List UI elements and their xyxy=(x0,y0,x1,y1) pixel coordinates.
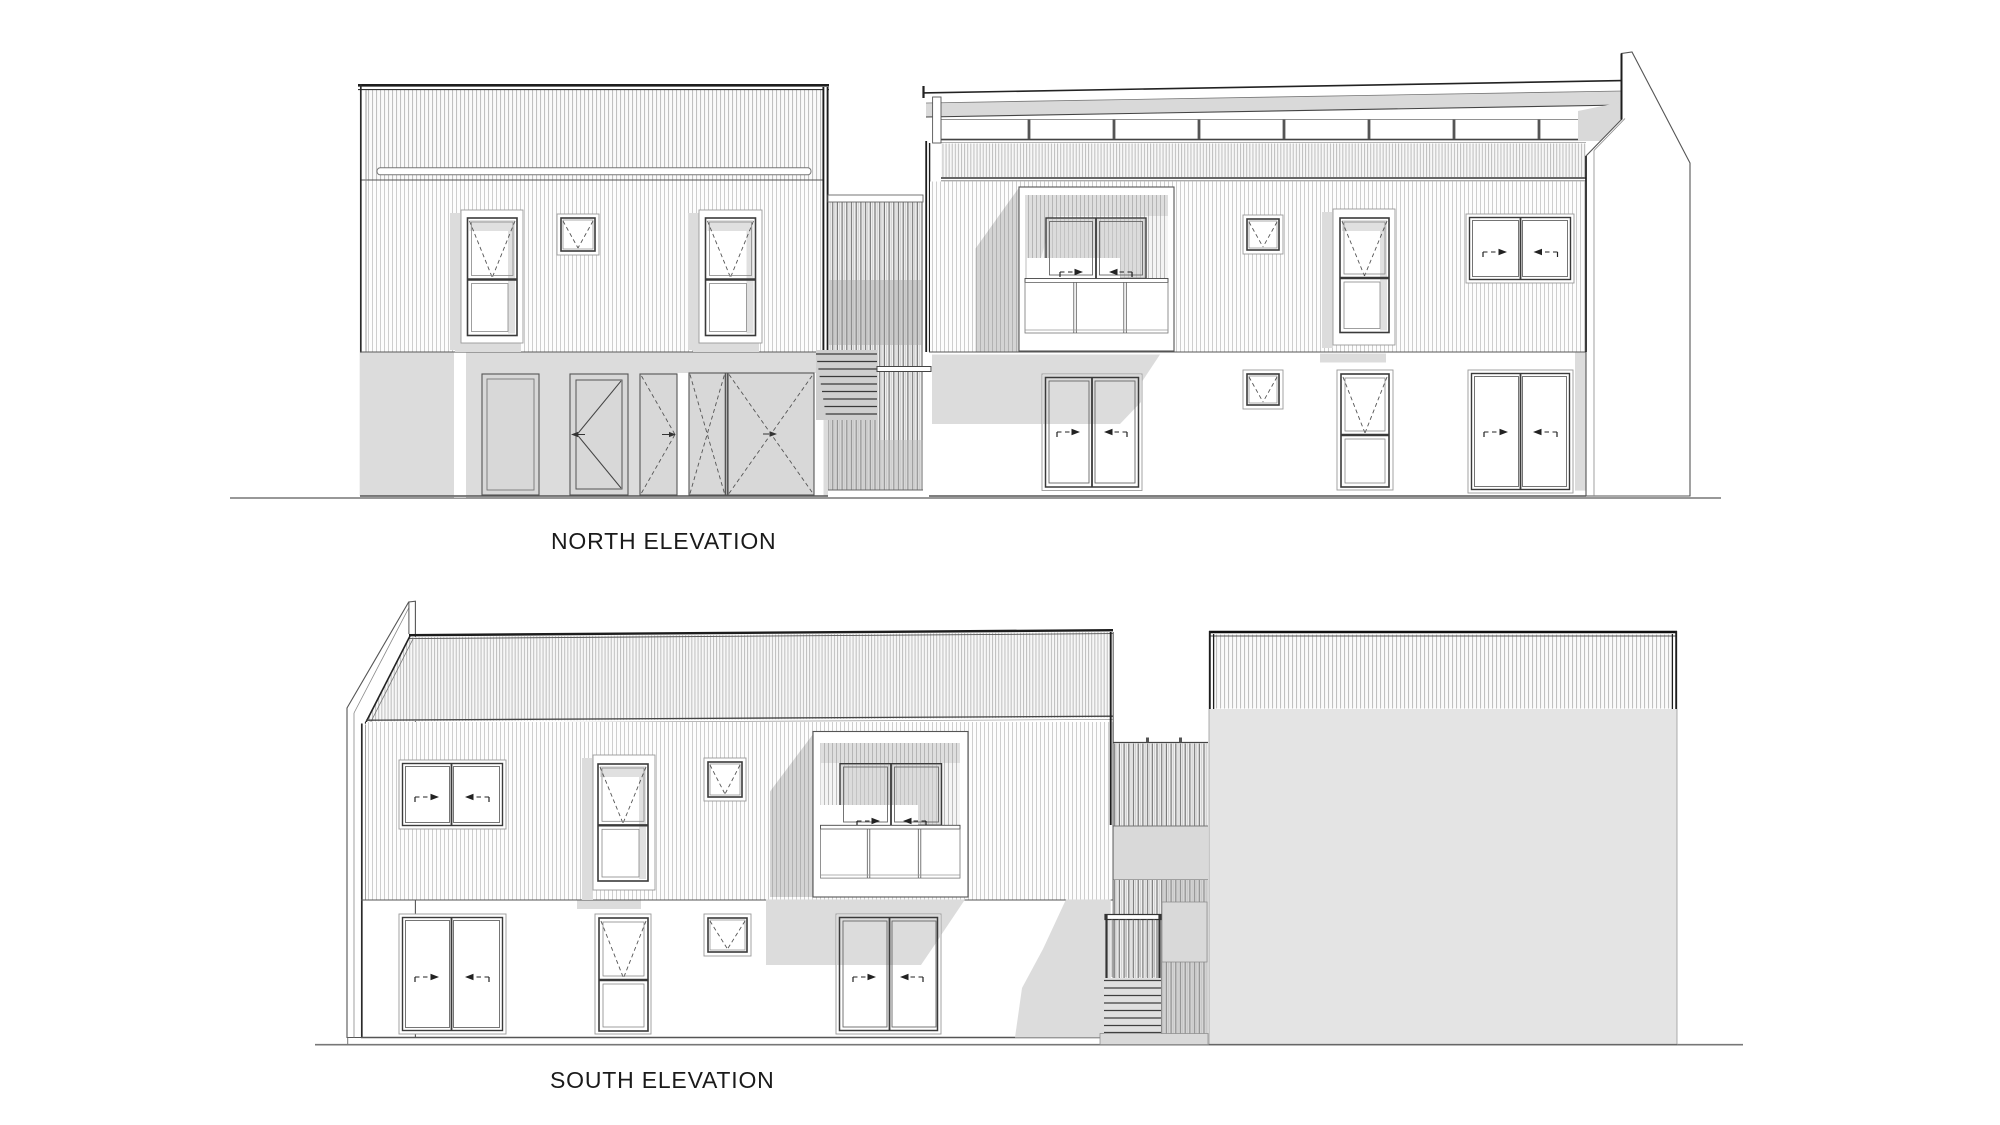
svg-text:SOUTH ELEVATION: SOUTH ELEVATION xyxy=(550,1067,775,1093)
svg-text:NORTH ELEVATION: NORTH ELEVATION xyxy=(551,528,776,554)
